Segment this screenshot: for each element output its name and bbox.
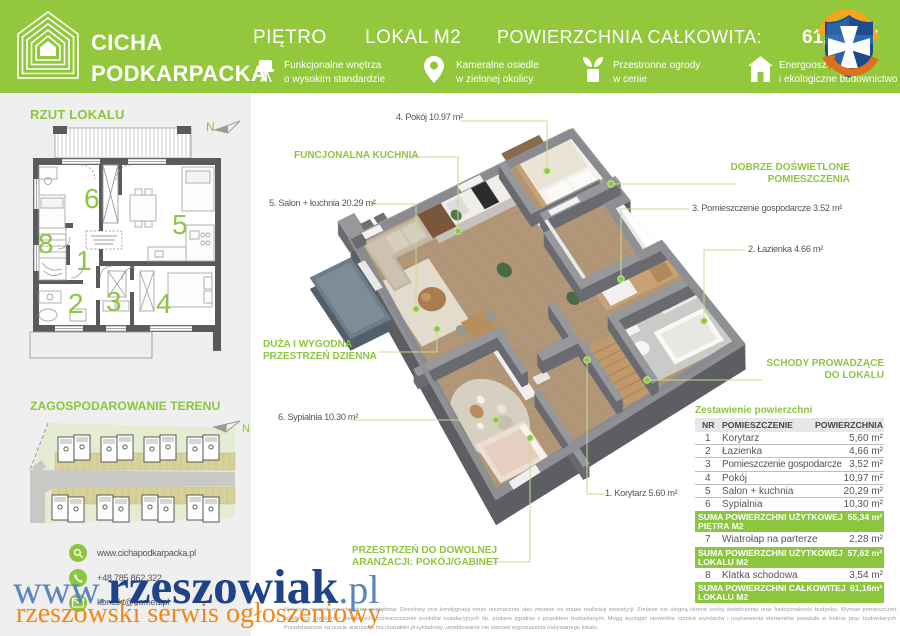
svg-text:3: 3 (106, 286, 122, 317)
svg-text:N: N (242, 423, 250, 435)
svg-text:1: 1 (76, 245, 92, 276)
svg-text:6: 6 (84, 183, 100, 214)
svg-text:4: 4 (156, 288, 172, 319)
svg-text:8: 8 (38, 228, 54, 259)
svg-text:2: 2 (68, 288, 84, 319)
svg-text:5: 5 (172, 209, 188, 240)
svg-text:N: N (206, 120, 215, 134)
